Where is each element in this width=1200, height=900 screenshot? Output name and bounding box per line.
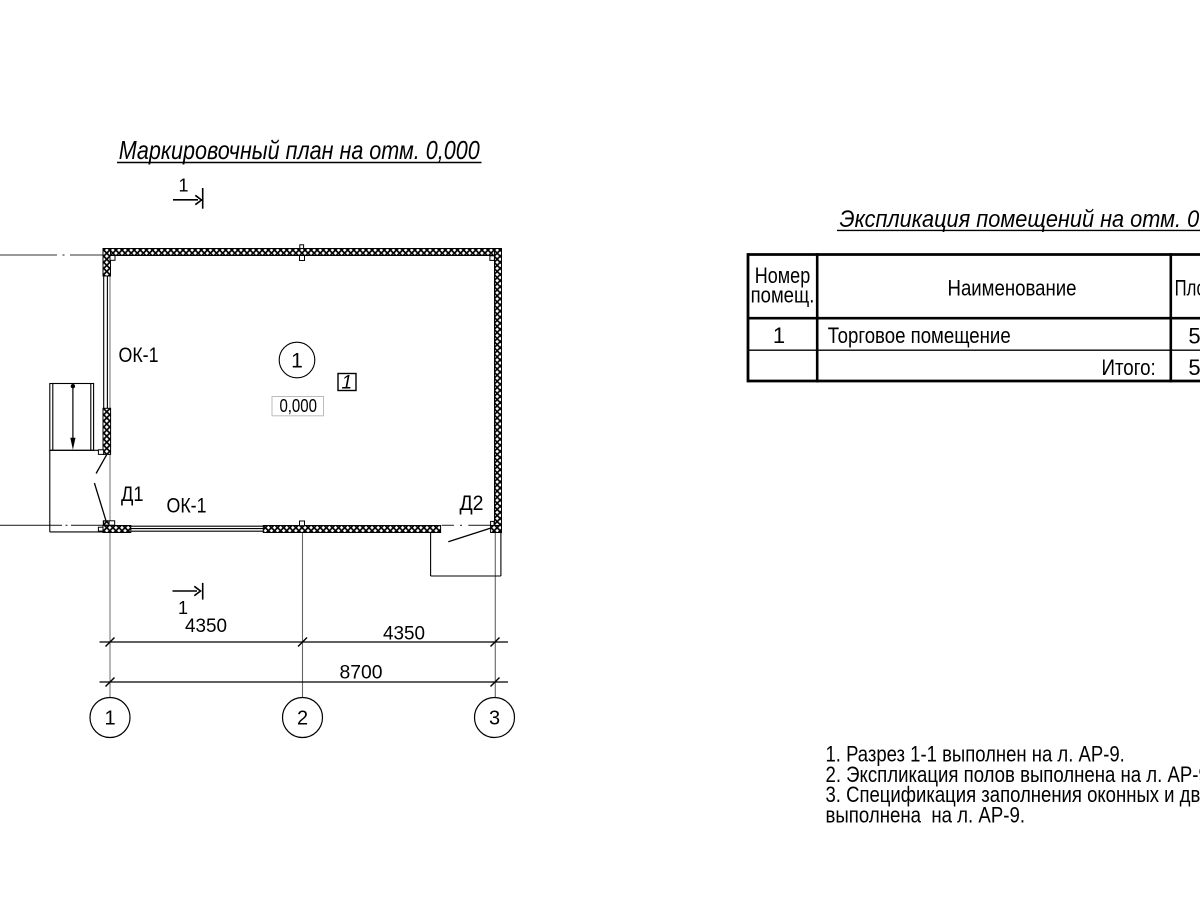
svg-text:Экспликация помещений на отм.: Экспликация помещений на отм. 0,000 [840,206,1200,233]
svg-text:1: 1 [342,373,353,394]
svg-text:ОК-1: ОК-1 [119,344,159,367]
svg-text:4350: 4350 [383,624,425,645]
svg-text:1: 1 [178,598,188,618]
svg-text:8700: 8700 [340,663,383,684]
svg-text:2: 2 [297,708,308,730]
svg-text:4350: 4350 [185,616,227,637]
svg-text:0,000: 0,000 [279,396,317,416]
svg-text:Итого:: Итого: [1102,355,1156,380]
svg-text:1: 1 [773,323,785,348]
svg-text:3: 3 [489,708,500,730]
svg-text:Площадь: Площадь [1175,276,1200,301]
svg-text:1: 1 [104,708,115,730]
svg-text:1: 1 [291,349,303,372]
svg-text:5: 5 [1188,355,1200,380]
svg-text:ОК-1: ОК-1 [167,495,207,518]
svg-text:Торговое помещение: Торговое помещение [828,323,1011,348]
svg-text:Маркировочный план на отм. 0,0: Маркировочный план на отм. 0,000 [119,135,480,165]
svg-text:5: 5 [1188,324,1200,349]
svg-text:1: 1 [178,176,188,196]
svg-text:выполнена на л. АР-9.: выполнена на л. АР-9. [826,802,1026,827]
svg-text:Наименование: Наименование [948,276,1077,301]
svg-text:помещ.: помещ. [751,282,815,307]
svg-text:Д1: Д1 [121,483,144,506]
svg-text:Д2: Д2 [460,492,484,515]
